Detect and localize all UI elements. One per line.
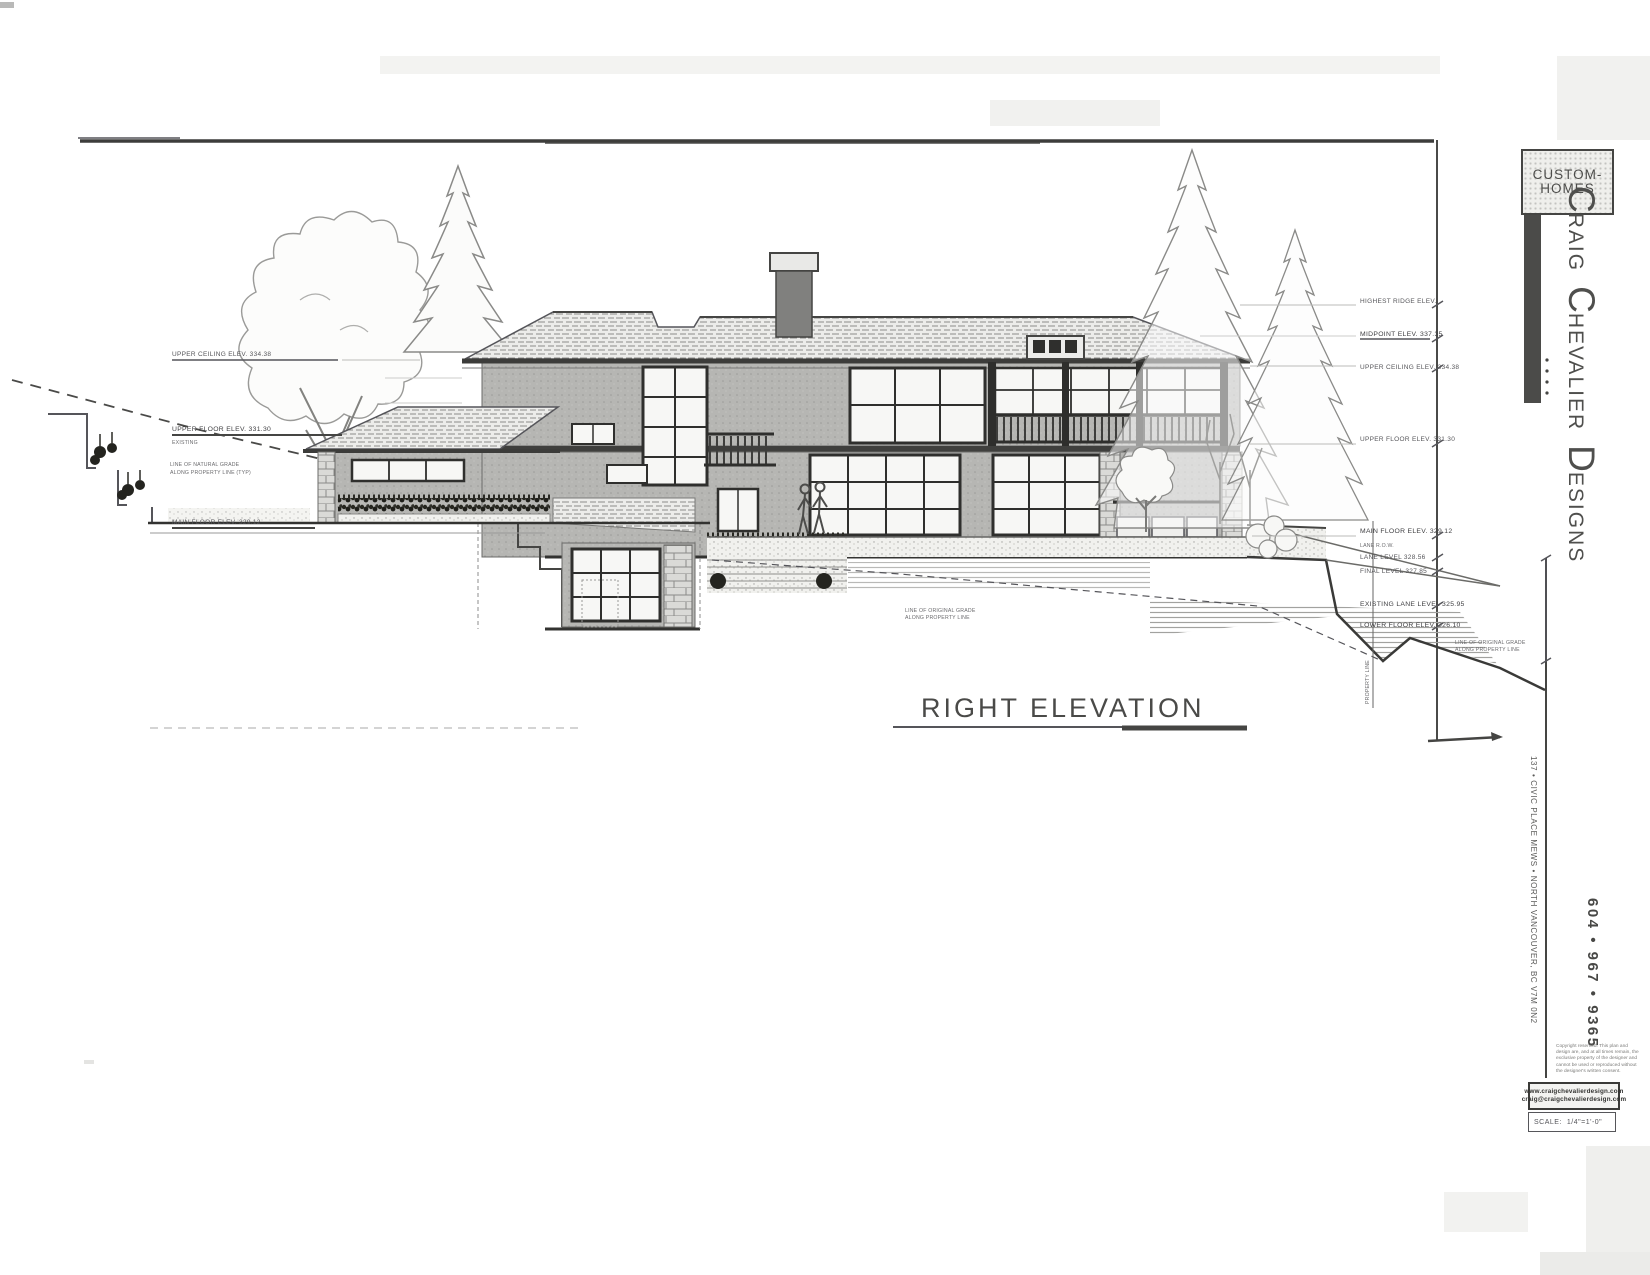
annotation-right-highest-ridge: HIGHEST RIDGE ELEV.	[1360, 298, 1437, 305]
annotation-property-line: PROPERTY LINE	[1365, 660, 1371, 704]
main-floor-glass-doors	[993, 455, 1100, 535]
deciduous-tree-canopy	[239, 211, 430, 423]
basement-stone-pier	[664, 545, 692, 627]
drawing-title: RIGHT ELEVATION	[921, 693, 1205, 723]
main-small-window	[607, 465, 647, 483]
grade-arrow-line	[1428, 732, 1503, 741]
firm-initial-1: C	[1561, 186, 1602, 213]
wing-stone-corner	[318, 452, 335, 523]
elevation-sheet-svg: UPPER CEILING ELEV. 334.38 UPPER FLOOR E…	[0, 0, 1650, 1275]
roof-dormer	[1027, 336, 1084, 359]
annotation-right-lane-row: LANE R.O.W.	[1360, 543, 1394, 549]
grade-and-earth	[148, 521, 1551, 741]
clerestory-windows	[352, 460, 464, 481]
annotation-left-upper-floor: UPPER FLOOR ELEV. 331.30	[172, 426, 271, 433]
logo-line-1: CUSTOM-	[1533, 168, 1603, 182]
website-box: www.craigchevalierdesign.com craig@craig…	[1528, 1082, 1620, 1110]
drawing-title-group: RIGHT ELEVATION	[893, 693, 1247, 728]
annotation-right-lower-floor: LOWER FLOOR ELEV. 326.10	[1360, 622, 1461, 629]
annotation-right-lane-level: LANE LEVEL 328.56	[1360, 554, 1426, 561]
upper-center-window	[850, 368, 985, 443]
firm-rest-2: HEVALIER	[1564, 313, 1587, 431]
main-roof	[465, 312, 1247, 360]
scale-label: SCALE:	[1534, 1119, 1562, 1126]
annotation-right-midpoint: MIDPOINT ELEV. 337.35	[1360, 331, 1443, 338]
website-line-2: craig@craigchevalierdesign.com	[1522, 1096, 1627, 1104]
hedge-left	[338, 498, 550, 515]
logo-dots	[1545, 358, 1548, 394]
annotation-left-natural-grade-2: ALONG PROPERTY LINE (TYP)	[170, 470, 251, 476]
upper-small-window	[572, 424, 614, 444]
stair-window	[643, 367, 707, 485]
annotation-right-final-level: FINAL LEVEL 327.85	[1360, 568, 1427, 575]
firm-rest-3: ESIGNS	[1564, 472, 1587, 563]
scale-box: SCALE: 1/4"=1'-0"	[1528, 1112, 1616, 1132]
balconette-railing	[704, 434, 776, 465]
scale-value: 1/4"=1'-0"	[1567, 1119, 1602, 1126]
right-trees	[1096, 150, 1368, 558]
firm-rest-1: RAIG	[1564, 213, 1587, 272]
annotation-left-natural-grade-1: LINE OF NATURAL GRADE	[170, 462, 240, 468]
chimney	[770, 253, 818, 337]
copyright-fine-print: Copyright reserved. This plan and design…	[1556, 1044, 1642, 1075]
phone-vertical: 604 • 967 • 9365	[1584, 898, 1601, 1049]
website-line-1: www.craigchevalierdesign.com	[1524, 1088, 1623, 1096]
annotation-right-original-grade-1: LINE OF ORIGINAL GRADE	[1455, 640, 1526, 646]
drawing-sheet: UPPER CEILING ELEV. 334.38 UPPER FLOOR E…	[0, 0, 1650, 1275]
annotation-right-upper-ceiling: UPPER CEILING ELEV. 334.38	[1360, 364, 1459, 371]
dimension-rule	[1541, 555, 1551, 664]
basement-window	[572, 549, 660, 621]
firm-initial-2: C	[1561, 286, 1602, 313]
walk-band	[707, 537, 1247, 557]
annotation-center-original-grade-1: LINE OF ORIGINAL GRADE	[905, 608, 976, 614]
title-block-bar	[1524, 215, 1541, 403]
planter-face-left	[338, 514, 550, 523]
address-vertical: 137 • CIVIC PLACE MEWS • NORTH VANCOUVER…	[1529, 756, 1538, 1024]
annotation-left-upper-ceiling: UPPER CEILING ELEV. 334.38	[172, 351, 271, 358]
firm-initial-3: D	[1561, 445, 1602, 472]
main-floor-window-wall	[810, 455, 960, 535]
annotation-right-existing-lane: EXISTING LANE LEVEL 325.95	[1360, 601, 1465, 608]
firm-name-vertical: CRAIGCHEVALIERDESIGNS	[1560, 186, 1602, 577]
annotation-left-main-floor: MAIN FLOOR ELEV. 329.12	[172, 519, 261, 526]
annotation-left-existing: EXISTING	[172, 440, 198, 446]
lower-stair-window	[718, 489, 758, 531]
annotation-right-original-grade-2: ALONG PROPERTY LINE	[1455, 647, 1520, 653]
annotation-center-original-grade-2: ALONG PROPERTY LINE	[905, 615, 970, 621]
